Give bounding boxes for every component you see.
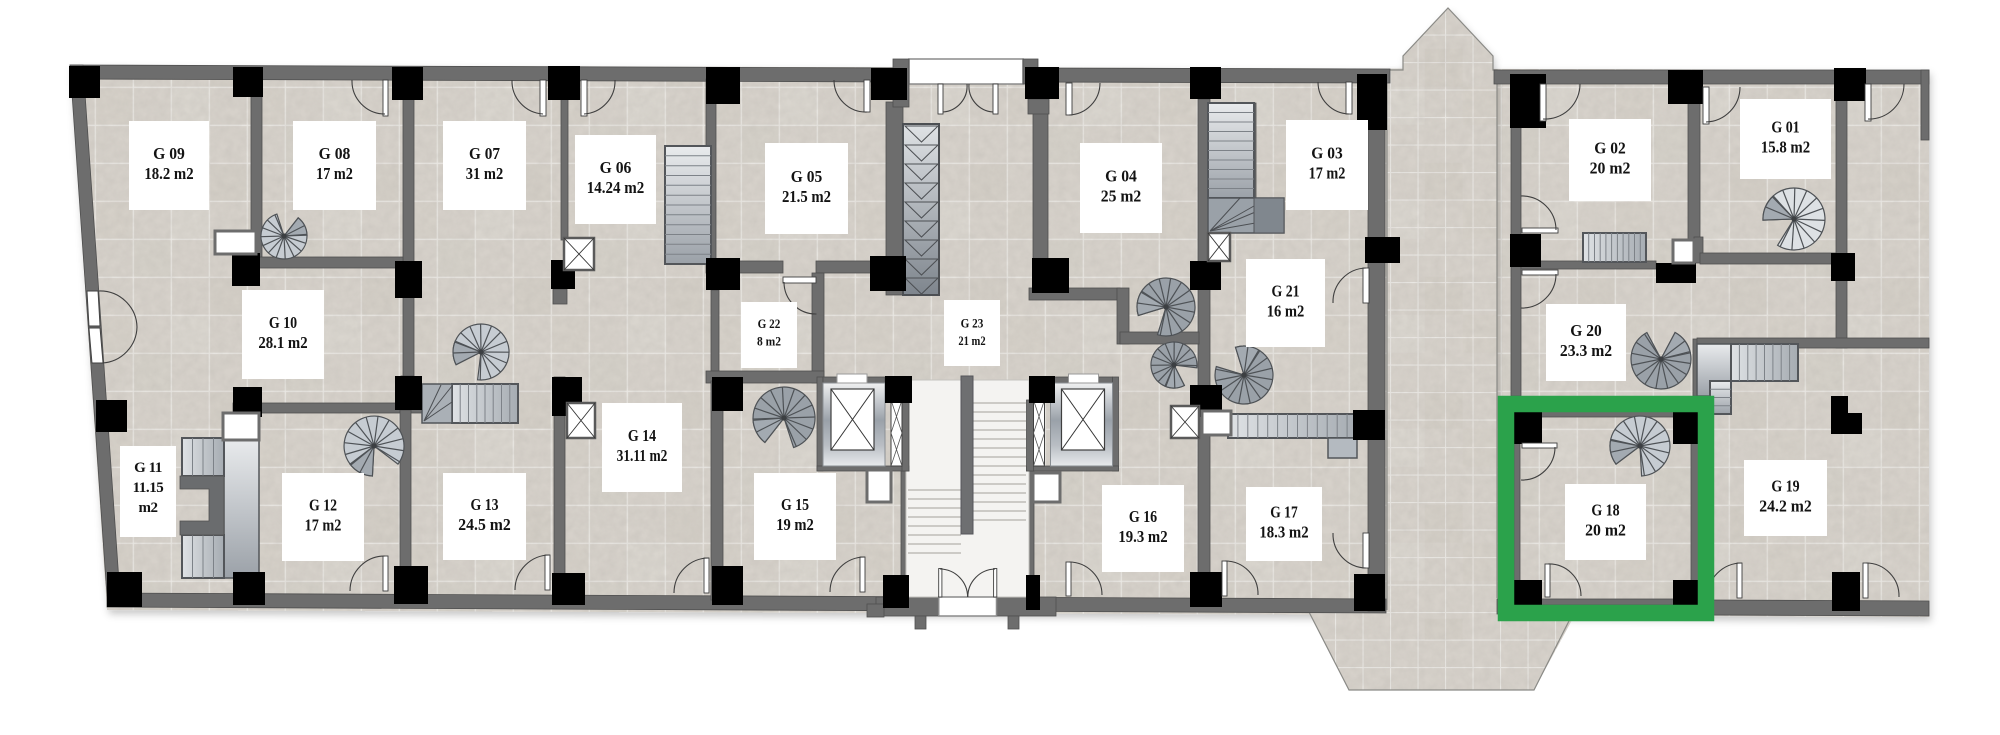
svg-text:G 02: G 02: [1594, 139, 1625, 158]
svg-text:G 08: G 08: [319, 144, 351, 163]
svg-text:8 m2: 8 m2: [757, 335, 781, 349]
svg-text:20 m2: 20 m2: [1590, 158, 1631, 177]
svg-text:19.3 m2: 19.3 m2: [1118, 527, 1167, 546]
svg-text:17 m2: 17 m2: [316, 164, 353, 183]
svg-text:21 m2: 21 m2: [958, 334, 985, 348]
svg-text:17 m2: 17 m2: [305, 515, 342, 534]
svg-text:G 23: G 23: [961, 317, 984, 331]
svg-text:G 19: G 19: [1771, 477, 1799, 496]
svg-text:25 m2: 25 m2: [1101, 186, 1142, 205]
svg-text:G 11: G 11: [134, 460, 162, 476]
svg-text:G 01: G 01: [1771, 118, 1799, 137]
svg-text:G 22: G 22: [758, 317, 781, 331]
svg-text:G 06: G 06: [600, 158, 632, 177]
svg-text:G 14: G 14: [628, 426, 657, 445]
svg-text:31 m2: 31 m2: [466, 164, 503, 183]
svg-text:31.11 m2: 31.11 m2: [617, 446, 668, 465]
svg-text:20 m2: 20 m2: [1585, 520, 1626, 539]
svg-text:16 m2: 16 m2: [1267, 301, 1305, 320]
svg-text:15.8 m2: 15.8 m2: [1761, 137, 1810, 156]
svg-text:G 05: G 05: [791, 167, 822, 186]
svg-text:24.5 m2: 24.5 m2: [458, 515, 511, 534]
svg-text:14.24 m2: 14.24 m2: [587, 178, 645, 197]
svg-text:G 15: G 15: [781, 495, 809, 514]
svg-text:G 16: G 16: [1129, 507, 1157, 526]
svg-text:11.15: 11.15: [133, 480, 164, 496]
svg-text:28.1 m2: 28.1 m2: [258, 333, 307, 352]
svg-text:G 18: G 18: [1591, 501, 1619, 520]
svg-text:G 07: G 07: [469, 144, 500, 163]
svg-text:G 13: G 13: [471, 495, 499, 514]
svg-text:19 m2: 19 m2: [776, 515, 814, 534]
svg-text:m2: m2: [138, 500, 157, 516]
svg-text:G 03: G 03: [1311, 144, 1342, 163]
svg-text:24.2 m2: 24.2 m2: [1759, 496, 1812, 515]
svg-text:G 20: G 20: [1570, 321, 1601, 340]
svg-text:G 10: G 10: [269, 313, 297, 332]
svg-text:17 m2: 17 m2: [1309, 163, 1346, 182]
svg-text:23.3 m2: 23.3 m2: [1560, 341, 1612, 360]
svg-text:G 12: G 12: [309, 496, 337, 515]
svg-text:G 21: G 21: [1272, 282, 1300, 301]
svg-text:21.5 m2: 21.5 m2: [782, 187, 831, 206]
svg-text:18.2 m2: 18.2 m2: [144, 164, 193, 183]
svg-text:G 04: G 04: [1105, 167, 1137, 186]
svg-text:18.3 m2: 18.3 m2: [1259, 522, 1308, 541]
svg-text:G 17: G 17: [1270, 503, 1297, 522]
svg-text:G 09: G 09: [153, 144, 185, 163]
